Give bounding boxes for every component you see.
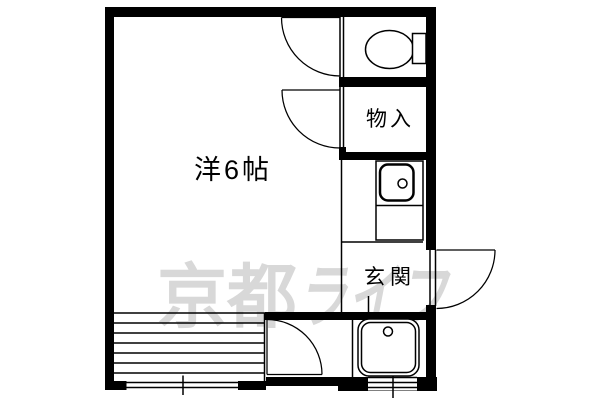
main-room-label: 洋6帖 [194,157,272,184]
floorplan-page: 京都ライフ [0,0,600,400]
storage-room-label: 物入 [366,109,414,130]
room-labels: 洋6帖 物入 玄関 [0,0,600,400]
entrance-label: 玄関 [364,267,416,288]
